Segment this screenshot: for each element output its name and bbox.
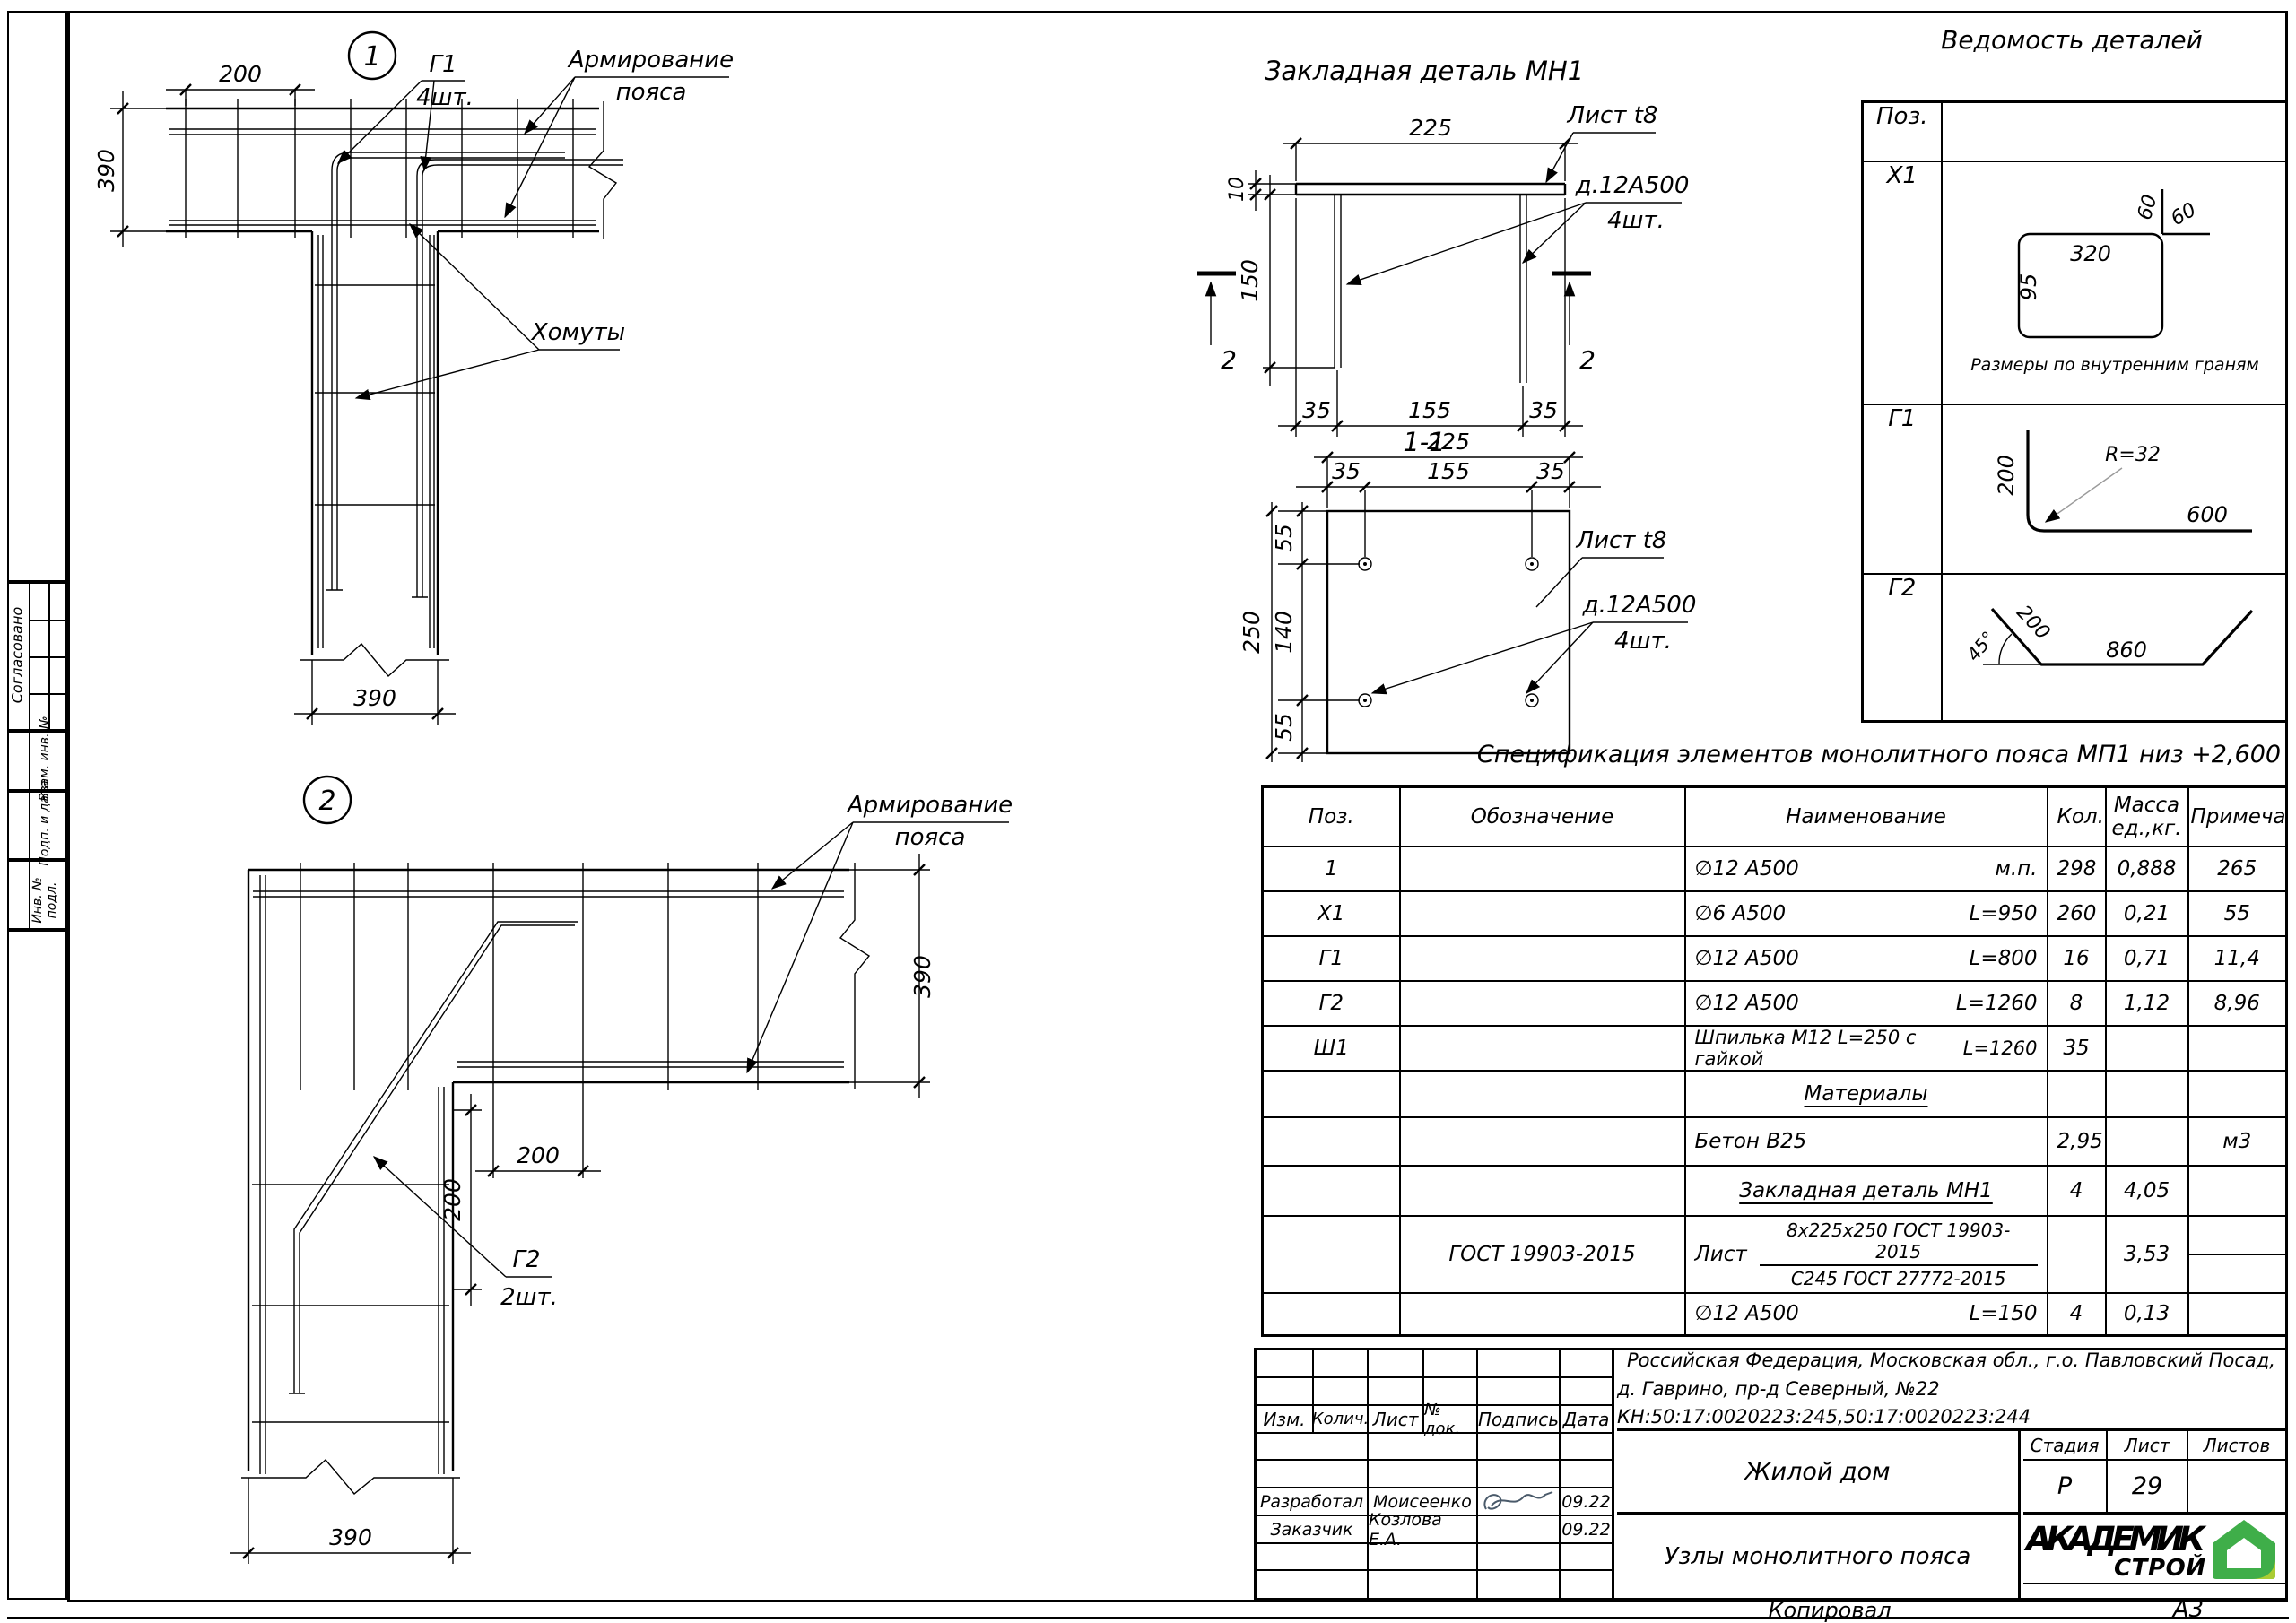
tb-sheet-value: 29 — [2108, 1461, 2188, 1515]
spec-prim-split — [2188, 1216, 2287, 1293]
vedomost-g1-sketch: 200 600 R=32 — [1942, 404, 2287, 574]
svg-text:60: 60 — [2167, 198, 2200, 230]
svg-text:155: 155 — [1408, 397, 1451, 423]
x1-caption: Размеры по внутренним граням — [1970, 355, 2259, 375]
vedomost-title: Ведомость деталей — [1883, 25, 2260, 55]
svg-text:2шт.: 2шт. — [500, 1284, 558, 1311]
svg-text:4шт.: 4шт. — [416, 84, 474, 111]
svg-text:250: 250 — [1239, 611, 1265, 654]
detail-1-label-stirrups: Хомуты — [356, 224, 625, 398]
mn1-plan-dims-top: 225 35 155 35 — [1296, 429, 1601, 508]
svg-text:200: 200 — [517, 1142, 560, 1168]
spec-row: ∅12 А500L=150 40,13 — [1263, 1293, 2287, 1336]
svg-text:225: 225 — [1427, 429, 1470, 455]
mn1-plate-elevation — [1296, 184, 1565, 383]
spec-h-kol: Кол. — [2048, 787, 2106, 846]
tb-h-kolich: Колич. — [1314, 1406, 1369, 1434]
akademik-stroy-logo: АКАДЕМИК СТРОЙ — [2026, 1516, 2283, 1581]
spec-title: Спецификация элементов монолитного пояса… — [1408, 741, 2296, 768]
detail-1-label-belt-reinforcement: Армирование пояса — [505, 47, 734, 217]
tb-stage-value: Р — [2023, 1461, 2108, 1515]
spec-h-pos: Поз. — [1263, 787, 1400, 846]
footer-format: А3 — [2144, 1596, 2233, 1623]
tb-h-list: Лист — [1369, 1406, 1424, 1434]
tb-dev-date: 09.22 — [1561, 1488, 1614, 1516]
spec-h-massa: Массаед.,кг. — [2106, 787, 2188, 846]
drawing-sheet: Согласовано Взам. инв. № Подп. и дата Ин… — [0, 0, 2296, 1623]
tb-cust-label: Заказчик — [1257, 1516, 1369, 1544]
vedomost-header-blank — [1942, 102, 2287, 161]
detail-1-drawing: 200 390 390 1 Г1 4шт. Армирование пояса — [76, 16, 785, 787]
detail-1-dim-390-left: 390 — [93, 91, 166, 247]
spec-row: Х1 ∅6 А500L=950 2600,2155 — [1263, 891, 2287, 936]
svg-text:Г1: Г1 — [429, 51, 457, 78]
signature-scribble — [1479, 1489, 1558, 1515]
svg-text:225: 225 — [1409, 115, 1452, 141]
svg-text:200: 200 — [439, 1178, 465, 1221]
mn1-dims-bottom: 35 155 35 — [1278, 198, 1583, 437]
spec-table: Поз. Обозначение Наименование Кол. Масса… — [1261, 785, 2288, 1337]
detail-2-dim-390-right: 390 — [849, 854, 935, 1098]
mn1-dim-225: 225 — [1283, 115, 1578, 181]
dim-label: 200 — [219, 61, 262, 87]
svg-text:60: 60 — [2134, 192, 2161, 222]
mn1-plan-dims-left: 55 140 55 250 — [1239, 502, 1360, 762]
svg-text:Хомуты: Хомуты — [530, 319, 625, 346]
sidebar-approved-label: Согласовано — [9, 584, 26, 727]
tb-dev-label: Разработал — [1257, 1488, 1369, 1516]
spec-row-gost: ГОСТ 19903-2015 Лист 8х225х250 ГОСТ 1990… — [1263, 1216, 2287, 1293]
tb-dev-signature — [1478, 1488, 1561, 1516]
svg-text:860: 860 — [2106, 638, 2147, 663]
svg-text:Лист t8: Лист t8 — [1576, 527, 1667, 554]
detail-2-rebar — [252, 863, 844, 1474]
sidebar-strip-bottom — [7, 930, 67, 1600]
svg-text:СТРОЙ: СТРОЙ — [2114, 1553, 2205, 1582]
mn1-plan-label-rebar: д.12А500 4шт. — [1372, 592, 1696, 693]
detail-number: 2 — [318, 785, 335, 817]
mn1-title: Закладная деталь МН1 — [1265, 56, 1584, 86]
svg-text:600: 600 — [2187, 502, 2228, 527]
mn1-label-rebar: д.12А500 4шт. — [1347, 172, 1689, 284]
detail-2-label-g2: Г2 2шт. — [374, 1157, 558, 1311]
mn1-dim-150: 150 — [1237, 175, 1335, 386]
dim-label: 390 — [353, 685, 396, 711]
tb-address: Российская Федерация, Московская обл., г… — [1617, 1350, 2285, 1431]
detail-1-callout-circle: 1 — [349, 32, 396, 79]
svg-text:Г2: Г2 — [512, 1246, 540, 1273]
detail-2-dim-200-horizontal: 200 — [475, 1090, 601, 1178]
svg-text:200: 200 — [1994, 455, 2019, 496]
spec-row: Бетон В25 2,95м3 — [1263, 1117, 2287, 1166]
spec-h-naim: Наименование — [1685, 787, 2048, 846]
spec-row: Г1 ∅12 А500L=800 160,7111,4 — [1263, 936, 2287, 981]
svg-text:35: 35 — [1529, 397, 1558, 423]
tb-drawing-title: Узлы монолитного пояса — [1617, 1515, 2021, 1598]
detail-2-dim-390-bottom: 390 — [230, 1478, 471, 1564]
detail-2-drawing: 390 390 200 200 2 Армирование пояса — [76, 777, 1045, 1619]
mn1-dim-10: 10 — [1226, 170, 1296, 211]
spec-h-prim: Примечание — [2188, 787, 2287, 846]
detail-1-dim-390-bottom: 390 — [294, 660, 456, 725]
svg-text:140: 140 — [1271, 611, 1297, 654]
svg-text:390: 390 — [909, 955, 935, 998]
detail-2-dim-200-vertical: 200 — [439, 1094, 482, 1306]
tb-h-sheet: Лист — [2108, 1431, 2188, 1461]
tb-h-sheets: Листов — [2188, 1431, 2285, 1461]
vedomost-x1-sketch: 320 95 60 60 Размеры по внутренним граня… — [1942, 161, 2287, 404]
svg-text:10: 10 — [1226, 177, 1248, 202]
tb-cust-name: Козлова Е.А. — [1369, 1516, 1478, 1544]
vedomost-g2-sketch: 45° 200 860 — [1942, 574, 2287, 722]
detail-1-rebar — [169, 99, 623, 648]
vedomost-g2-pos: Г2 — [1863, 574, 1942, 722]
svg-text:35: 35 — [1332, 458, 1361, 484]
svg-text:пояса: пояса — [616, 79, 687, 106]
svg-text:д.12А500: д.12А500 — [1575, 172, 1690, 199]
tb-logo-box: АКАДЕМИК СТРОЙ — [2023, 1515, 2285, 1584]
svg-text:д.12А500: д.12А500 — [1582, 592, 1697, 619]
tb-h-podpis: Подпись — [1478, 1406, 1561, 1434]
footer-copied: Копировал — [1695, 1598, 1964, 1623]
svg-text:2: 2 — [1221, 345, 1237, 375]
svg-text:АКАДЕМИК: АКАДЕМИК — [2023, 1520, 2207, 1558]
svg-text:55: 55 — [1271, 524, 1297, 552]
tb-h-data: Дата — [1561, 1406, 1614, 1434]
detail-2-label-belt-reinforcement: Армирование пояса — [747, 792, 1013, 1072]
svg-text:4шт.: 4шт. — [1607, 207, 1665, 234]
svg-text:45°: 45° — [1962, 627, 1999, 665]
spec-row: Ш1 Шпилька М12 L=250 с гайкойL=1260 35 — [1263, 1026, 2287, 1071]
vedomost-g1-pos: Г1 — [1863, 404, 1942, 574]
spec-row: 1 ∅12 А500м.п. 2980,888265 — [1263, 846, 2287, 891]
detail-2-callout-circle: 2 — [304, 777, 351, 823]
vedomost-x1-pos: Х1 — [1863, 161, 1942, 404]
paper-bottom-edge — [7, 1617, 2289, 1619]
svg-text:35: 35 — [1536, 458, 1565, 484]
detail-number: 1 — [363, 41, 380, 73]
tb-sheets-value — [2188, 1461, 2285, 1515]
svg-text:R=32: R=32 — [2105, 444, 2161, 466]
mn1-drawing: Закладная деталь МН1 225 10 150 35 155 3… — [1193, 49, 1713, 767]
vedomost-table: Поз. Х1 320 95 60 60 Размеры по внутренн… — [1861, 100, 2288, 723]
tb-h-izm: Изм. — [1257, 1406, 1314, 1434]
tb-h-doc: № док. — [1424, 1406, 1478, 1434]
svg-text:4шт.: 4шт. — [1614, 628, 1672, 655]
tb-cust-date: 09.22 — [1561, 1516, 1614, 1544]
svg-text:155: 155 — [1427, 458, 1470, 484]
svg-text:320: 320 — [2070, 241, 2111, 266]
mn1-plate-plan — [1327, 490, 1570, 753]
svg-text:2: 2 — [1579, 345, 1596, 375]
svg-text:95: 95 — [2016, 273, 2041, 300]
vedomost-header-pos: Поз. — [1863, 102, 1942, 161]
spec-row-materials: Материалы — [1263, 1071, 2287, 1117]
tb-object: Жилой дом — [1617, 1431, 2021, 1515]
svg-text:Армирование: Армирование — [846, 792, 1013, 819]
detail-1-dim-200: 200 — [166, 61, 315, 106]
sidebar-podp-label: Подп. и дата — [38, 780, 52, 866]
svg-text:390: 390 — [329, 1524, 372, 1550]
mn1-label-sheet: Лист t8 — [1546, 102, 1657, 182]
title-block: Изм. Колич. Лист № док. Подпись Дата Раз… — [1254, 1348, 2288, 1601]
spec-h-obozn: Обозначение — [1400, 787, 1685, 846]
dim-label: 390 — [93, 149, 119, 192]
spec-row: Г2 ∅12 А500L=1260 81,128,96 — [1263, 981, 2287, 1026]
svg-text:пояса: пояса — [895, 824, 966, 851]
svg-text:Армирование: Армирование — [567, 47, 734, 74]
svg-text:55: 55 — [1271, 713, 1297, 742]
svg-text:Лист t8: Лист t8 — [1567, 102, 1658, 129]
svg-text:35: 35 — [1302, 397, 1331, 423]
sidebar-strip-top — [7, 11, 67, 582]
spec-row: Закладная деталь МН1 44,05 — [1263, 1166, 2287, 1216]
tb-h-stage: Стадия — [2023, 1431, 2108, 1461]
svg-text:150: 150 — [1237, 259, 1263, 302]
